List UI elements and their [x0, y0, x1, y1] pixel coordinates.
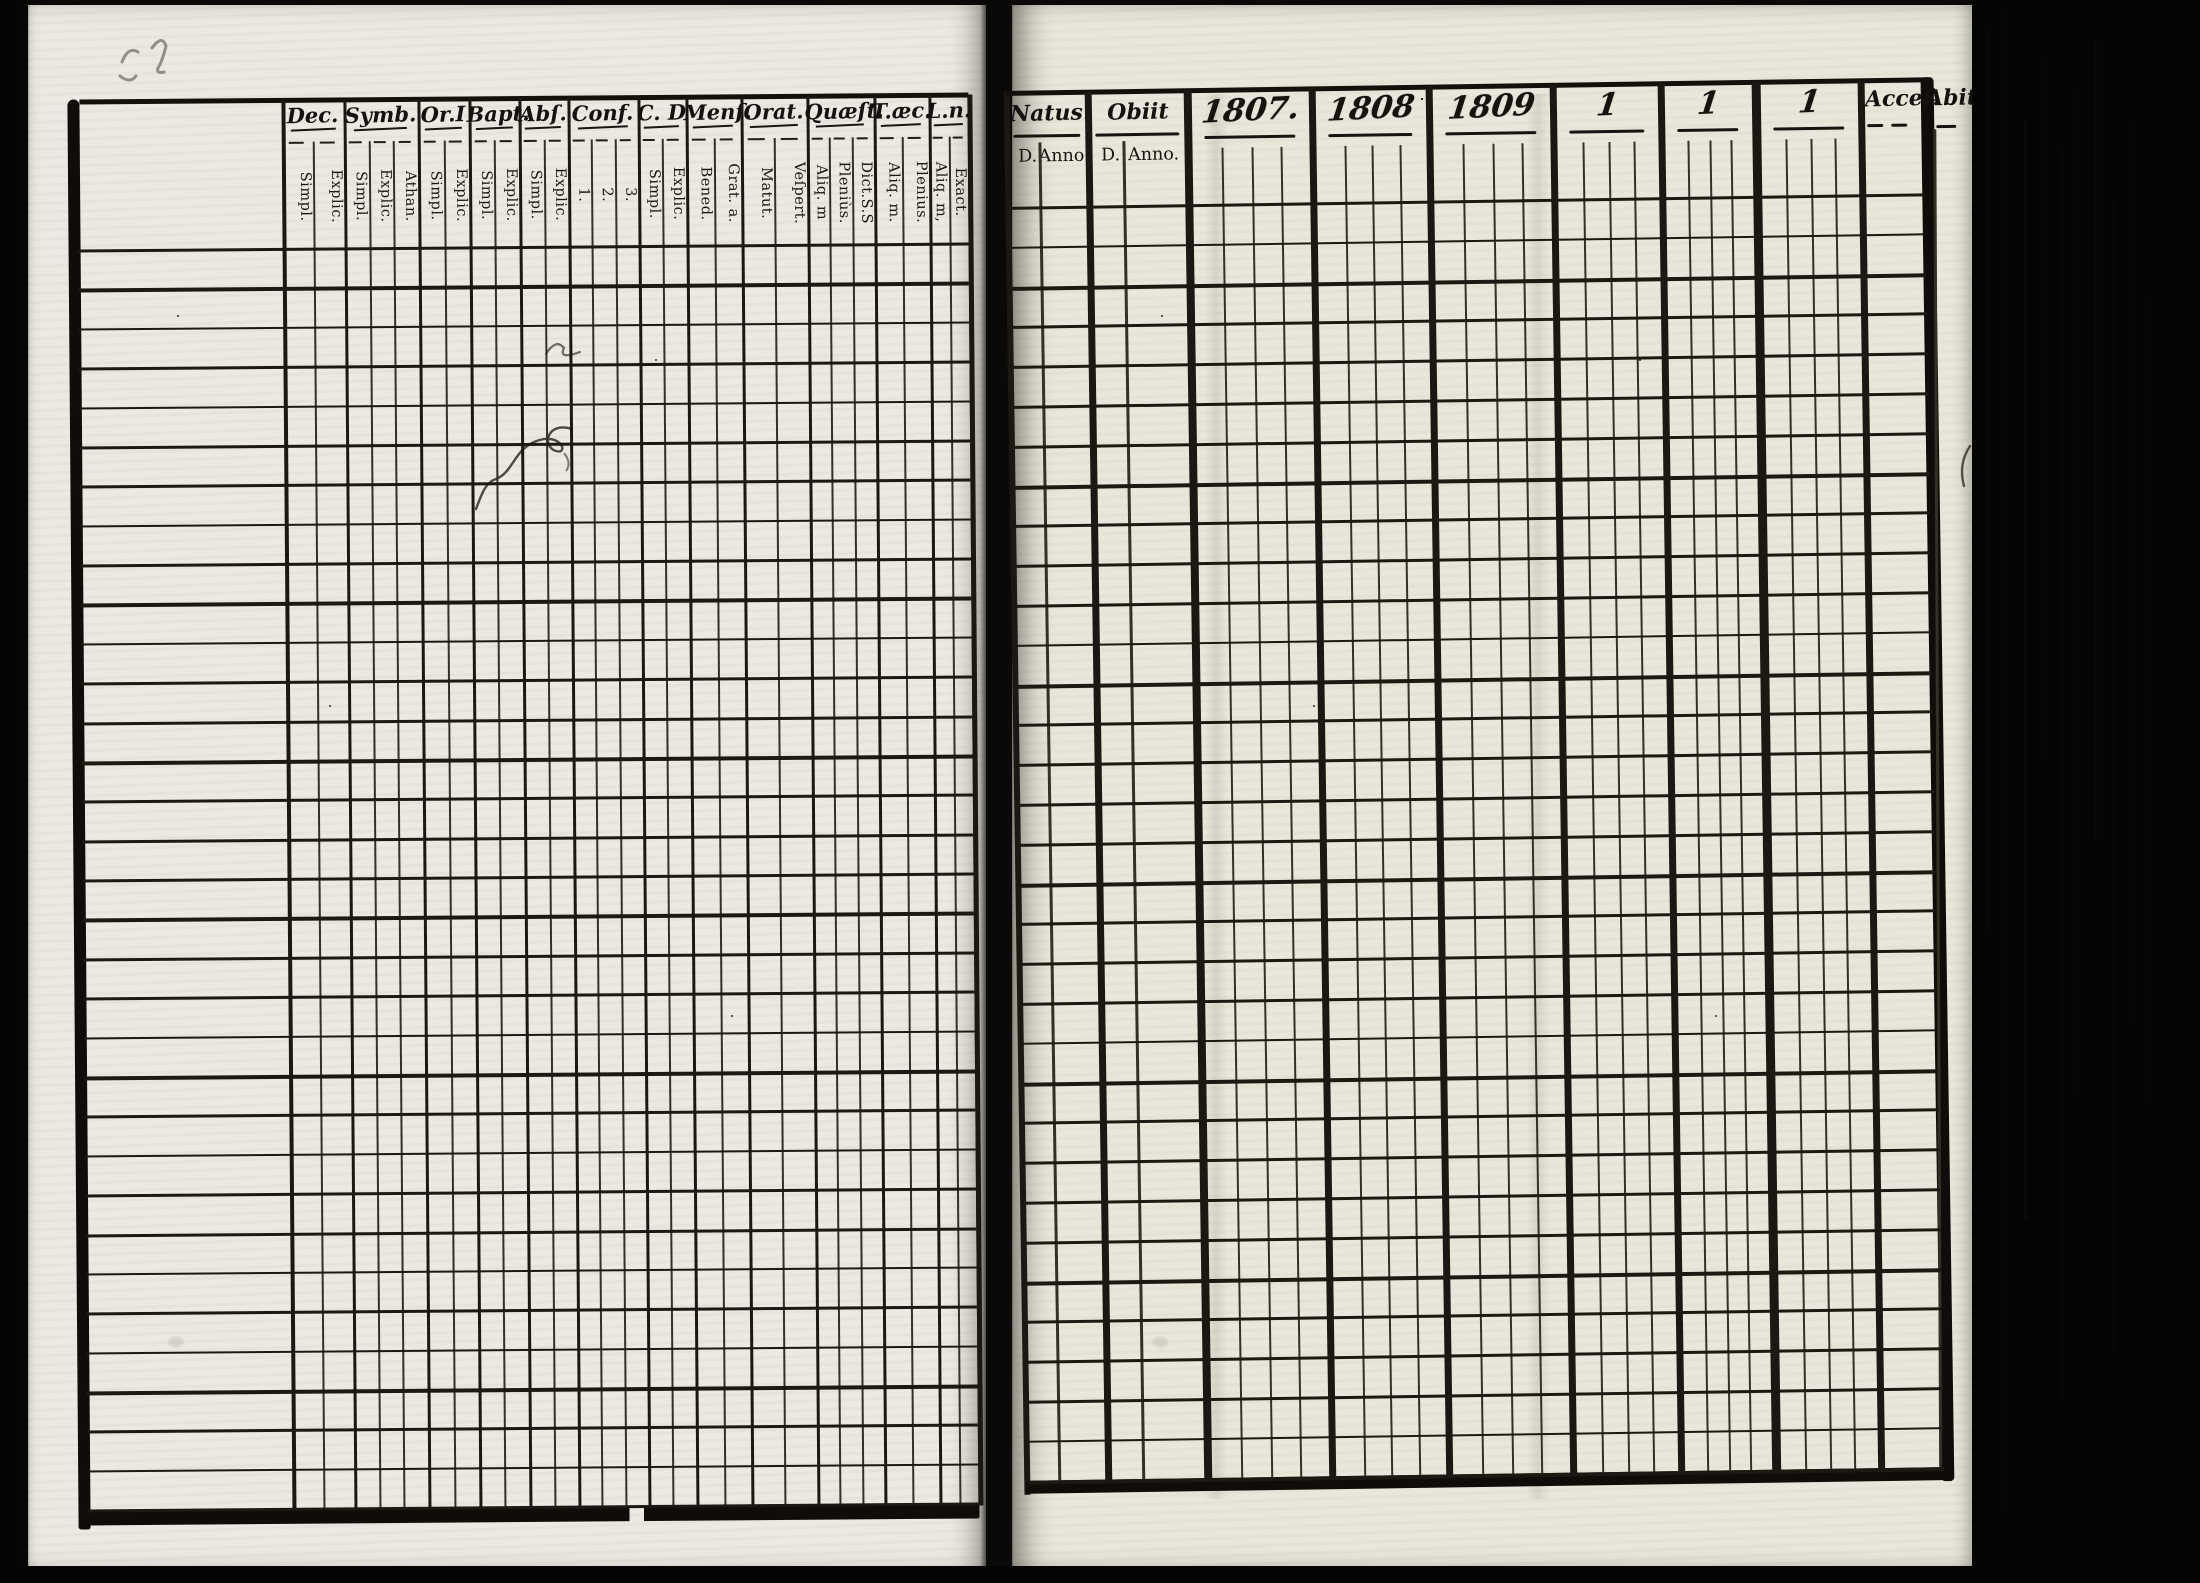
year-underline — [1773, 127, 1844, 131]
year-underline — [1328, 133, 1412, 137]
row-line — [79, 361, 970, 371]
row-line — [85, 1148, 976, 1157]
column-line — [518, 98, 532, 1509]
row-line — [82, 833, 973, 843]
group-line — [1858, 80, 1886, 1470]
column-line — [740, 96, 754, 1507]
subcolumn-label: Veſpert. — [774, 136, 808, 242]
scanned-book-spread: Dec.Simpl.Explic.Symb.Simpl.Explic.Athan… — [0, 0, 2200, 1583]
row-line — [78, 282, 969, 293]
right-page-table: Natus.D.Anno.ObiitD.Anno.1807.1808180911… — [1004, 77, 1955, 1495]
column-line — [806, 96, 820, 1507]
row-line — [79, 439, 970, 450]
subcolumn-line — [851, 137, 864, 1504]
column-label: Bapt. — [466, 103, 521, 130]
group-line — [1426, 87, 1454, 1477]
row-line — [83, 951, 974, 961]
row-line — [84, 1030, 975, 1039]
column-line — [343, 99, 357, 1510]
fore-edge-streak — [2130, 120, 2132, 1020]
column-label: Conf. — [565, 101, 640, 129]
column-label: Quæſt. — [804, 100, 876, 128]
name-column-line — [281, 100, 296, 1511]
subcolumn-label: Aliq. m — [807, 136, 830, 242]
row-line — [86, 1306, 977, 1316]
column-label: T.æc. — [871, 99, 931, 126]
status-column-label: Acceſ. — [1865, 87, 1927, 110]
fore-edge-streak — [2060, 150, 2064, 1400]
row-line — [80, 597, 971, 608]
column-label: Menſ. — [683, 101, 743, 128]
group-line — [1085, 92, 1113, 1482]
subcolumn-label: Explic. — [368, 139, 393, 245]
subcolumn-line — [713, 138, 726, 1505]
row-line — [81, 715, 972, 725]
column-line — [685, 97, 699, 1508]
subcolumn-line — [368, 141, 381, 1508]
record-column-label: Natus. — [1010, 101, 1085, 125]
row-line — [87, 1384, 978, 1395]
subcolumn-line — [901, 137, 914, 1504]
subcolumn-label: Explic. — [313, 139, 345, 245]
row-line — [79, 400, 970, 409]
column-line — [928, 95, 942, 1506]
group-line — [1658, 83, 1686, 1473]
record-subcolumn-line — [1122, 141, 1144, 1479]
column-line — [417, 99, 431, 1510]
group-line — [1184, 90, 1213, 1480]
subcolumn-label: Simpl. — [519, 138, 544, 244]
subcolumn-label: Simpl. — [282, 140, 314, 246]
row-line — [83, 873, 974, 882]
label-underline — [1936, 125, 1956, 128]
year-underline — [1677, 128, 1738, 132]
subcolumn-label: Athan. — [393, 139, 418, 245]
row-line — [82, 794, 973, 803]
label-underline — [1013, 134, 1080, 138]
column-line — [873, 95, 887, 1506]
subcolumn-label: 2. — [591, 137, 615, 243]
row-line — [83, 991, 974, 1000]
row-line — [83, 912, 974, 923]
row-line — [87, 1424, 978, 1434]
book-fore-edge-band — [1972, 0, 2200, 1583]
fore-edge-streak — [2040, 60, 2042, 760]
row-line — [85, 1188, 976, 1198]
fore-edge-streak — [1986, 30, 1990, 930]
row-line — [78, 321, 969, 330]
subcolumn-label: Explic. — [443, 138, 469, 244]
row-line — [86, 1266, 977, 1275]
column-label: L.n. — [926, 99, 970, 126]
scan-edge-left — [0, 0, 30, 1583]
label-underline — [1867, 124, 1883, 127]
group-line — [1309, 88, 1337, 1478]
column-label: Orat. — [738, 100, 809, 128]
subcolumn-line — [443, 141, 456, 1508]
subcolumn-line — [393, 141, 406, 1508]
subcolumn-label: Exact. — [948, 135, 968, 241]
year-underline — [1445, 131, 1536, 135]
label-underline — [1095, 132, 1179, 136]
subcolumn-line — [614, 139, 627, 1506]
year-label: 1 — [1663, 86, 1754, 121]
column-label: Or.I — [415, 103, 471, 130]
year-label: 1809 — [1431, 89, 1552, 126]
subcolumn-label: Pleniùs. — [829, 135, 852, 241]
row-line — [84, 1069, 975, 1080]
year-label: 1808 — [1314, 91, 1428, 128]
subcolumn-label: Aliq. m, — [929, 135, 949, 241]
fore-edge-streak — [2024, 120, 2027, 1220]
row-line — [84, 1109, 975, 1118]
row-line — [81, 636, 972, 645]
subcolumn-label: Simpl. — [418, 139, 444, 245]
subcolumn-label: 1. — [568, 137, 592, 243]
fore-edge-streak — [2078, 90, 2080, 1090]
label-underline — [1891, 124, 1907, 127]
group-line — [1752, 82, 1782, 1472]
year-underline — [1569, 129, 1644, 133]
handwritten-scribble — [108, 24, 198, 94]
subcolumn-label: Aliq. m. — [874, 135, 902, 241]
group-line — [1550, 85, 1578, 1475]
row-line — [79, 479, 970, 489]
row-line — [82, 754, 973, 765]
subcolumn-label: Simpl. — [638, 137, 663, 243]
row-line — [85, 1227, 976, 1238]
year-label: 1 — [1759, 85, 1860, 121]
subcolumn-label: 3. — [614, 137, 638, 243]
fore-edge-streak — [2006, 10, 2008, 1510]
column-label: C. D — [635, 101, 688, 128]
subcolumn-line — [948, 137, 961, 1504]
row-line — [87, 1463, 978, 1472]
subcolumn-label: Bened. — [686, 137, 714, 243]
subcolumn-label: Simpl. — [469, 138, 495, 244]
record-subcolumn-label: Anno. — [1038, 148, 1085, 166]
scan-edge-top — [0, 0, 2200, 5]
column-label: Symb. — [341, 103, 420, 131]
record-column-label: Obiit — [1092, 100, 1184, 124]
year-label: 1 — [1555, 87, 1660, 123]
subcolumn-line — [774, 138, 787, 1505]
column-label: Dec. — [279, 104, 346, 132]
column-line — [468, 98, 482, 1509]
fore-edge-streak — [2112, 200, 2115, 1350]
row-line — [81, 676, 972, 685]
subcolumn-label: Grat. a. — [713, 136, 741, 242]
column-line — [567, 98, 581, 1509]
subcolumn-line — [591, 139, 604, 1506]
scan-edge-bottom — [0, 1566, 2200, 1583]
subcolumn-line — [313, 142, 326, 1509]
subcolumn-label: Explic. — [494, 138, 520, 244]
subcolumn-label: Plenius. — [901, 135, 929, 241]
year-underline — [1204, 135, 1295, 139]
subcolumn-label: Explic. — [662, 137, 687, 243]
row-line — [80, 518, 971, 527]
subcolumn-line — [543, 140, 556, 1507]
fore-edge-streak — [2148, 300, 2150, 1100]
subcolumn-label: Explic. — [543, 138, 568, 244]
record-subcolumn-label: Anno. — [1122, 146, 1184, 164]
subcolumn-label: Matut. — [741, 136, 775, 242]
row-line — [80, 558, 971, 567]
subcolumn-label: Simpl. — [344, 139, 369, 245]
left-page-table: Dec.Simpl.Explic.Symb.Simpl.Explic.Athan… — [67, 92, 983, 1529]
fore-edge-streak — [2094, 40, 2097, 840]
column-label: Abſ. — [516, 102, 570, 129]
column-line — [637, 97, 651, 1508]
record-subcolumn-line — [1038, 142, 1060, 1480]
subcolumn-line — [829, 138, 842, 1505]
subcolumn-label: Dict.S.S — [851, 135, 874, 241]
row-line — [86, 1345, 977, 1354]
year-label: 1807. — [1190, 92, 1311, 129]
subcolumn-line — [494, 140, 507, 1507]
subcolumn-line — [662, 139, 675, 1506]
